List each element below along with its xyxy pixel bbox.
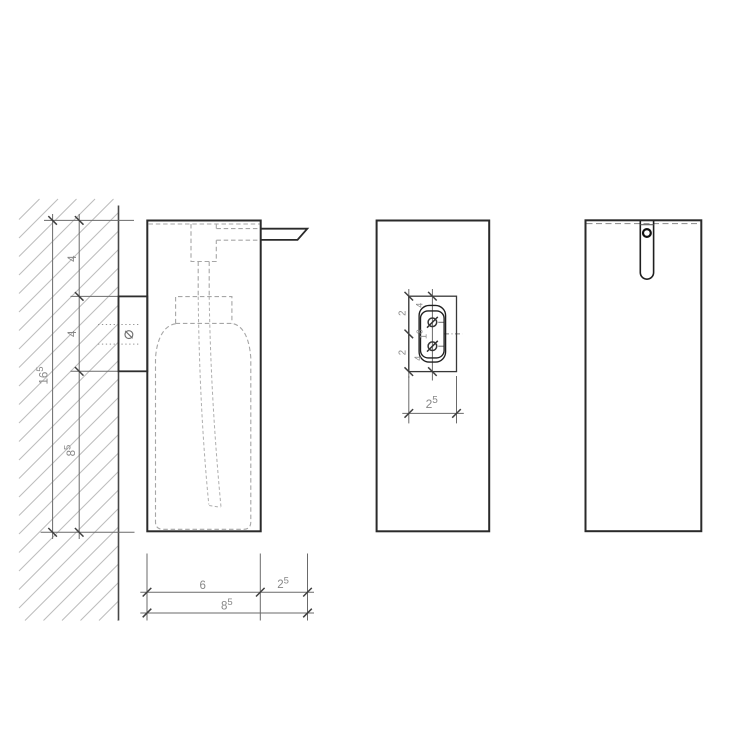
svg-text:4: 4 bbox=[67, 255, 79, 262]
svg-text:2: 2 bbox=[397, 311, 408, 316]
svg-text:6: 6 bbox=[199, 580, 205, 592]
svg-text:4: 4 bbox=[413, 356, 423, 361]
svg-text:4: 4 bbox=[414, 303, 424, 308]
svg-text:4: 4 bbox=[67, 330, 79, 337]
svg-text:2: 2 bbox=[397, 350, 408, 355]
